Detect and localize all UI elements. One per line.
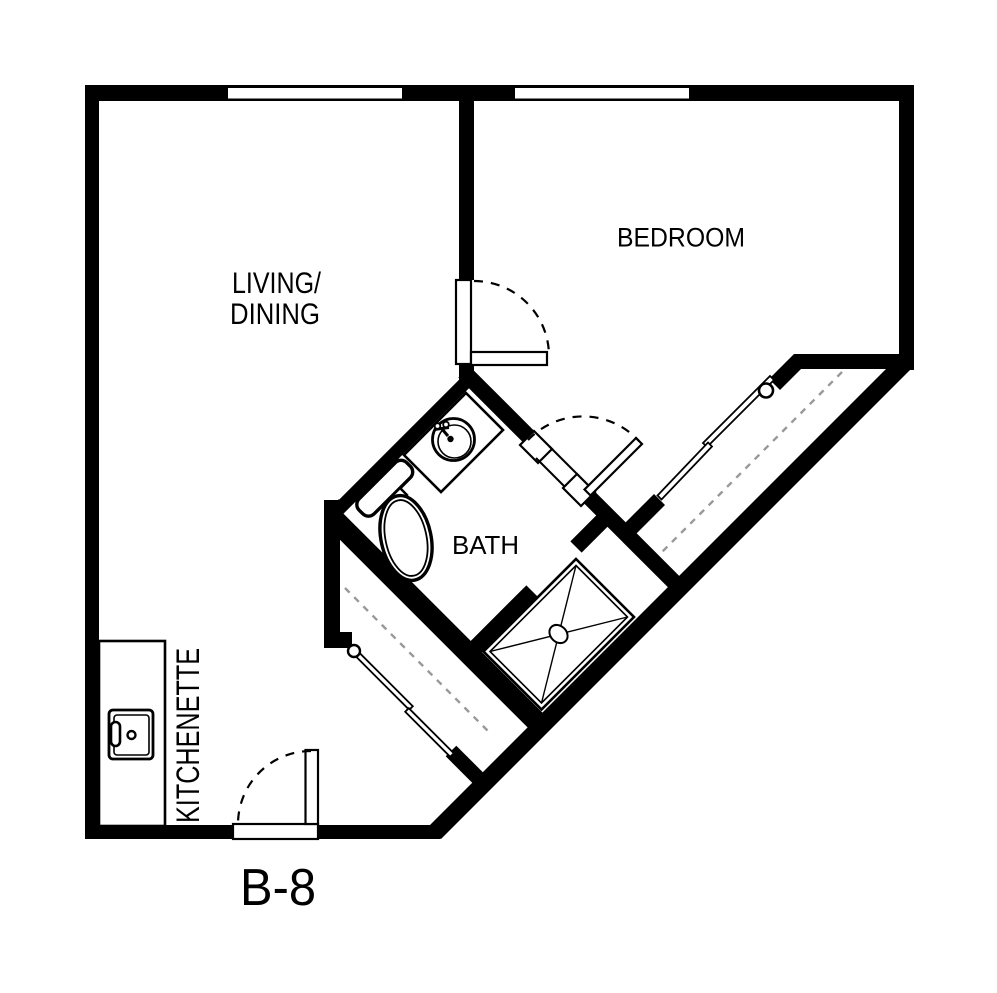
svg-text:BEDROOM: BEDROOM <box>617 223 745 253</box>
svg-text:B-8: B-8 <box>240 859 316 917</box>
svg-text:LIVING/: LIVING/ <box>232 267 322 300</box>
svg-text:BATH: BATH <box>452 532 519 560</box>
svg-text:KITCHENETTE: KITCHENETTE <box>170 648 206 823</box>
svg-text:DINING: DINING <box>230 298 320 331</box>
